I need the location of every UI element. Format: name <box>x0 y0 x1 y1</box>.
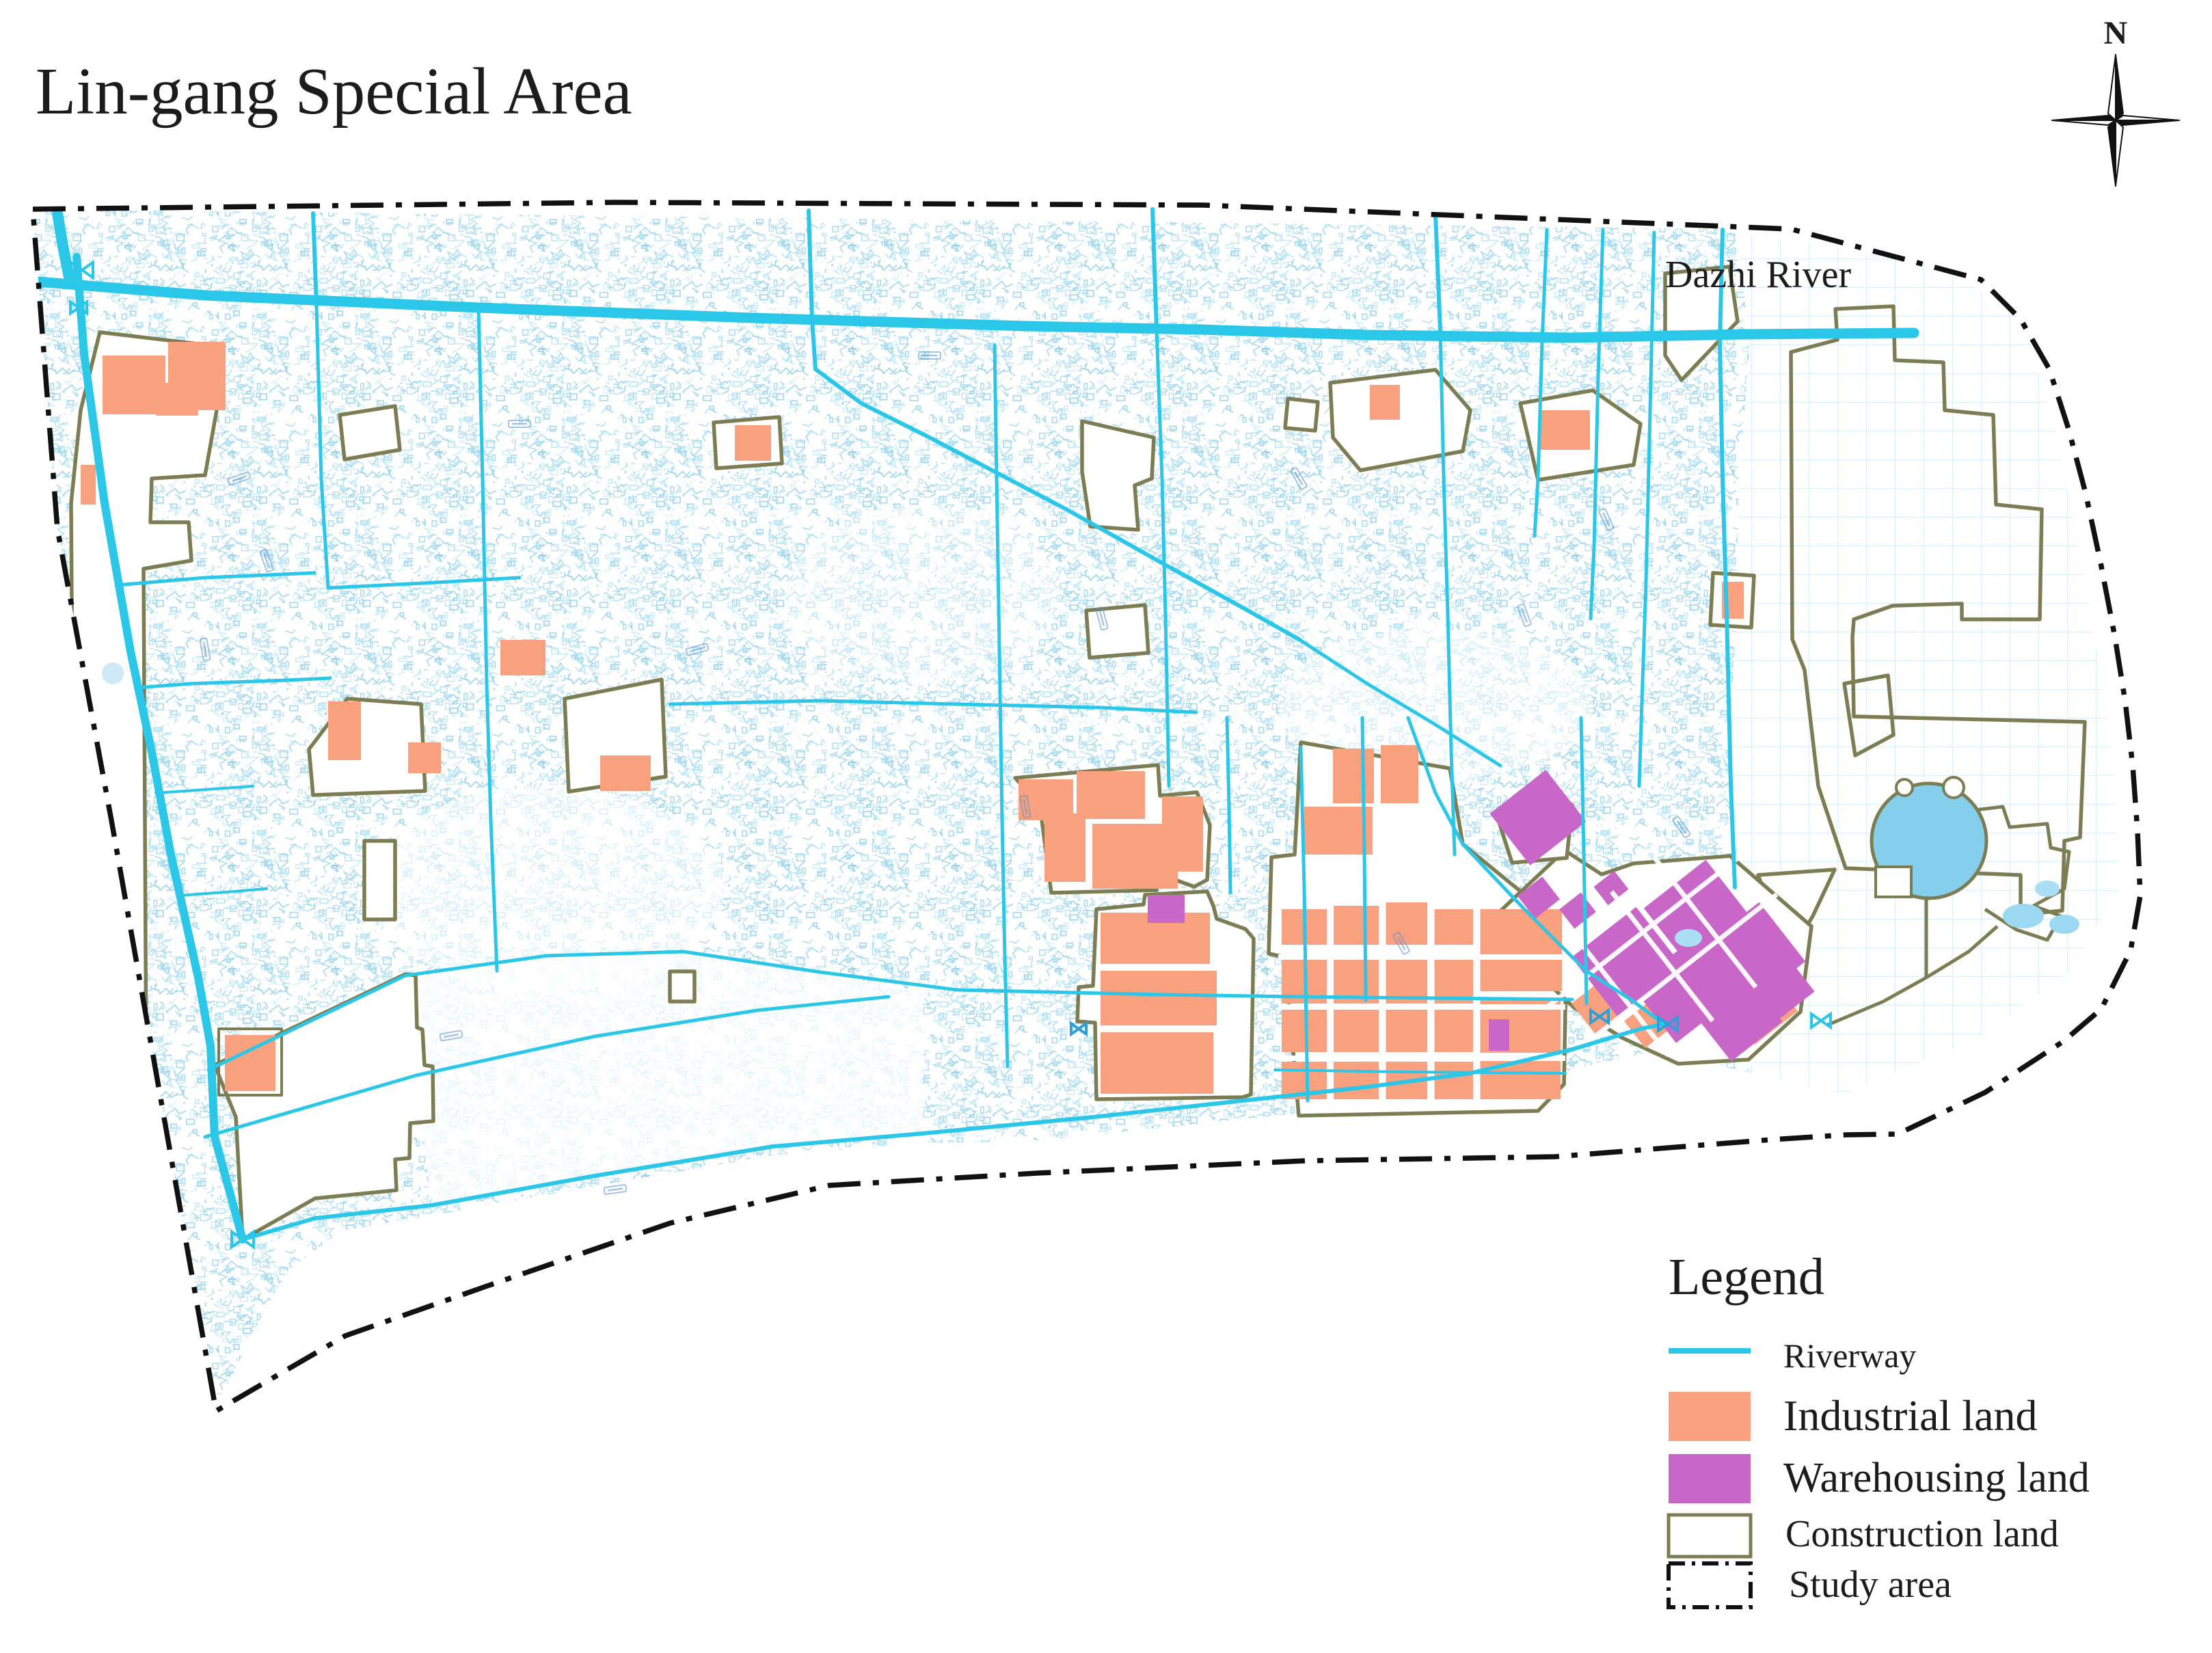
svg-text:Legend: Legend <box>1669 1248 1824 1306</box>
svg-text:Riverway: Riverway <box>1783 1336 1916 1375</box>
svg-text:Construction land: Construction land <box>1785 1513 2059 1555</box>
svg-text:N: N <box>2104 15 2128 51</box>
svg-text:Lin-gang Special Area: Lin-gang Special Area <box>36 55 632 128</box>
svg-text:Study area: Study area <box>1789 1563 1952 1606</box>
svg-text:Dazhi River: Dazhi River <box>1665 254 1851 296</box>
svg-text:Warehousing land: Warehousing land <box>1783 1455 2090 1501</box>
svg-text:Industrial land: Industrial land <box>1783 1391 2037 1440</box>
